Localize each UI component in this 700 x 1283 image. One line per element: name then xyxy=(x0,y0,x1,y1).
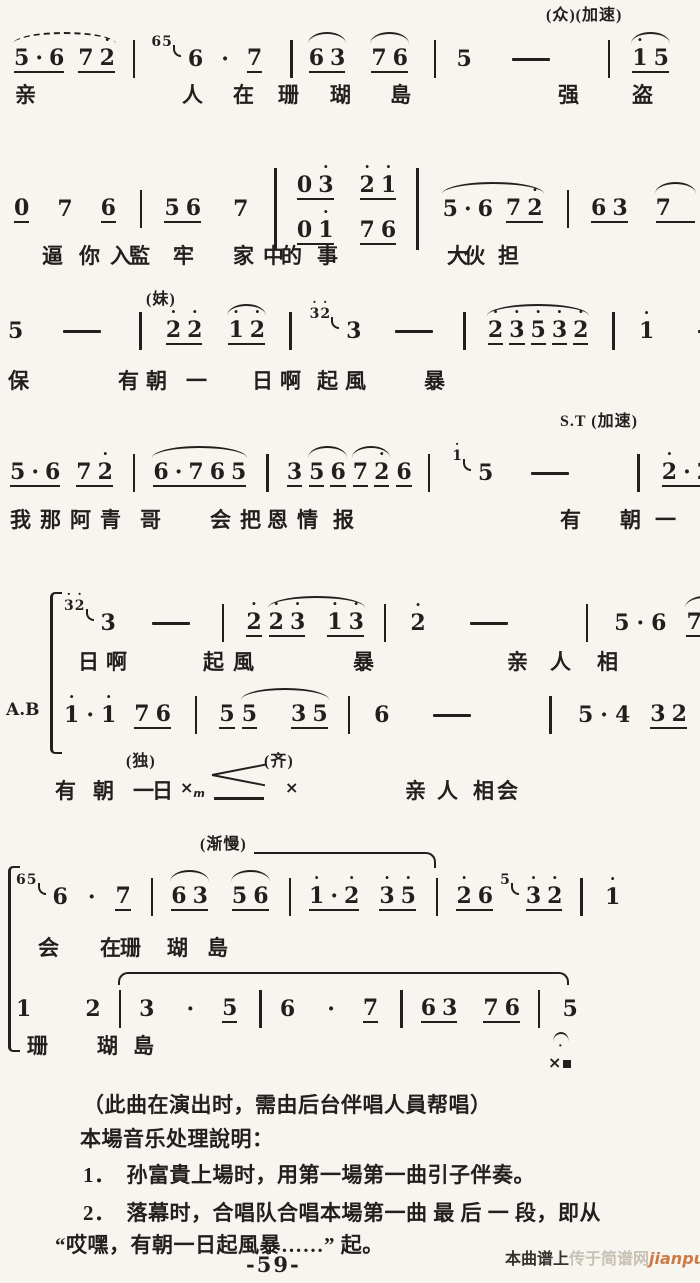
grace-notes: ·1 xyxy=(452,449,471,471)
augmentation-dot: · xyxy=(221,47,229,71)
note: 3 xyxy=(346,319,361,343)
note: 6 xyxy=(421,996,436,1020)
lyric-syllable: 日 xyxy=(252,368,273,394)
barline xyxy=(289,312,292,350)
lyric-syllable: 家 xyxy=(233,243,254,269)
lyric-syllable: 青 xyxy=(100,507,121,533)
page-number: -59- xyxy=(246,1252,301,1277)
slur-group: 63 xyxy=(171,884,208,911)
grace-notes: 65 xyxy=(151,35,181,57)
beam-group: 63 xyxy=(591,196,628,223)
note: 6 xyxy=(396,460,411,487)
note: ·1 xyxy=(318,218,333,242)
barline xyxy=(133,40,136,78)
lyric-syllable: 恩 xyxy=(267,507,288,533)
note: 7 xyxy=(57,197,72,221)
lyric-syllable: 人 xyxy=(437,778,458,804)
barline xyxy=(400,990,403,1028)
note: 3 xyxy=(612,196,627,220)
sheet-music-page: （此曲在演出时，需由后台伴唱人員帮唱） 本場音乐处理說明： 1． 孙富貴上場时，… xyxy=(0,0,700,1283)
octave-dot-above: · xyxy=(98,450,113,458)
barline xyxy=(195,696,198,734)
lyric-syllable: 事 xyxy=(317,243,338,269)
beam-group: 5·6 xyxy=(443,197,493,221)
note: 5 xyxy=(562,997,577,1021)
staff-line: 0765670·3·2·10·1765·67·2637 xyxy=(14,184,700,234)
barline xyxy=(274,168,277,250)
lyric-syllable: 相 xyxy=(597,649,618,675)
staff-line: 5·67·2656·763765·15·1 xyxy=(14,34,700,84)
lyric-syllable: 一 xyxy=(655,507,676,533)
note: ·3 xyxy=(349,610,364,634)
slur-group: ·2·3·1·3 xyxy=(269,610,364,637)
beam-group: ·2··2 xyxy=(662,460,700,487)
footer-note-line-5: “哎嘿，有朝一日起風暴……” 起。 xyxy=(55,1232,384,1259)
duration-dash xyxy=(152,622,190,625)
note: 5 xyxy=(614,611,629,635)
note: 7 xyxy=(115,884,130,911)
watermark-brand: jianpu.cn xyxy=(649,1249,700,1268)
note: ·2 xyxy=(98,460,113,484)
slur-group: 5·67·2 xyxy=(443,196,543,223)
beam-group: 5·6 xyxy=(10,460,60,487)
note: ·2 xyxy=(547,884,562,908)
octave-dot-above: · xyxy=(456,874,471,882)
note: 5 xyxy=(443,197,458,221)
octave-dot-above: · xyxy=(349,600,364,608)
square-mark-icon xyxy=(563,1060,571,1068)
tempo-annotation: (齐) xyxy=(264,752,294,772)
note: 3 xyxy=(291,702,306,726)
beam-group: 35 xyxy=(291,702,328,729)
lyric-syllable: 珊 xyxy=(120,935,141,961)
lyric-syllable: 起 xyxy=(203,649,224,675)
lyric-syllable: ×m xyxy=(180,778,205,800)
lyric-syllable: 在 xyxy=(233,82,254,108)
barline xyxy=(538,990,541,1028)
lyric-syllable: 人 xyxy=(550,649,571,675)
lyric-syllable: 起 xyxy=(317,368,338,394)
system-bracket xyxy=(50,592,62,754)
augmentation-dot: · xyxy=(637,611,645,635)
note: ·2 xyxy=(269,610,284,634)
note: 6 xyxy=(101,196,116,223)
note: 6 xyxy=(393,46,408,70)
lyric-syllable: 入 xyxy=(110,243,131,269)
lyric-syllable: 保 xyxy=(8,368,29,394)
beam-group: 7·2 xyxy=(76,460,113,487)
octave-dot-above: · xyxy=(605,875,620,883)
note: ·5 xyxy=(531,318,546,345)
note: ·2 xyxy=(374,460,389,487)
footer-note-line-2: 本場音乐处理說明： xyxy=(80,1126,274,1153)
lyric-syllable: 报 xyxy=(333,507,354,533)
lyric-syllable: 担 xyxy=(498,243,519,269)
note: ·3 xyxy=(379,884,394,908)
octave-dot-above: · xyxy=(320,299,330,305)
barline xyxy=(266,454,269,492)
note: 7 xyxy=(363,996,378,1023)
note: 7 xyxy=(360,218,375,242)
footer-note-line-3: 1． 孙富貴上場时，用第一場第一曲引子伴奏。 xyxy=(83,1162,535,1189)
octave-dot-above: · xyxy=(318,208,333,216)
octave-dot-above: · xyxy=(360,163,375,171)
note: 5 xyxy=(456,47,471,71)
octave-dot-above: · xyxy=(509,308,524,316)
augmentation-dot: · xyxy=(683,460,691,484)
two-voice-stack: 0·3·2·10·176 xyxy=(297,173,396,245)
note: 5 xyxy=(219,702,234,729)
tempo-annotation: S.T (加速) xyxy=(560,412,638,432)
octave-dot-above: · xyxy=(381,163,396,171)
note: ·3 xyxy=(64,599,74,614)
note: ·2 xyxy=(187,318,202,342)
note: 5 xyxy=(231,460,246,484)
lyric-syllable: 伙 xyxy=(464,243,485,269)
note: 5 xyxy=(232,884,247,908)
slur-group: 56 xyxy=(232,884,269,911)
lyric-syllable: 島 xyxy=(207,935,228,961)
note: 6 xyxy=(188,47,203,71)
octave-dot-above: · xyxy=(374,450,389,458)
barline xyxy=(348,696,351,734)
note: 5 xyxy=(14,46,29,70)
octave-dot-above: · xyxy=(228,308,243,316)
note: 7 xyxy=(134,702,149,726)
beam-group: 0·3 xyxy=(297,173,334,200)
note: 6 xyxy=(49,46,64,70)
octave-dot-above: · xyxy=(526,874,541,882)
note: 3 xyxy=(193,884,208,908)
note: 7 xyxy=(353,460,368,487)
note: ·2 xyxy=(360,173,375,197)
lyric-syllable: 朝 xyxy=(93,778,114,804)
slur-group: 76 xyxy=(371,46,408,73)
barline xyxy=(139,312,142,350)
barline xyxy=(463,312,466,350)
grace-hook-icon xyxy=(38,883,46,895)
slur-group: 7 xyxy=(656,196,695,223)
lyric-syllable: 一 xyxy=(186,368,207,394)
note: ·1 xyxy=(452,449,462,464)
note: 6 xyxy=(651,611,666,635)
note: 3 xyxy=(139,997,154,1021)
staff-line: 5·2·2·1·2·3·23·2·3·5·3·2·1 xyxy=(8,306,700,356)
tempo-annotation: (渐慢) xyxy=(200,835,247,855)
beam-group: ·26 xyxy=(456,884,493,911)
note: 5 xyxy=(8,319,23,343)
octave-dot-above: · xyxy=(344,874,359,882)
note: 5 xyxy=(500,873,510,888)
note: 6 xyxy=(374,703,389,727)
staff-line: ·3·23·2·2·3·1·3·25·67·2 xyxy=(64,598,700,648)
lyric-syllable: 風 xyxy=(345,368,366,394)
staff-line: 656·76356·1··2·3·5·265·3·2·1 xyxy=(16,872,700,922)
note: 6 xyxy=(280,997,295,1021)
octave-dot-above: · xyxy=(269,600,284,608)
octave-dot-above: · xyxy=(310,299,320,305)
duration-dash xyxy=(512,58,550,61)
augmentation-dot: · xyxy=(88,885,96,909)
note: 5 xyxy=(162,35,172,50)
note: 0 xyxy=(297,173,312,197)
beam-group: 7·2 xyxy=(78,46,115,73)
lyric-syllable: 牢 xyxy=(173,243,194,269)
note: 7 xyxy=(78,46,93,70)
octave-dot-above: · xyxy=(75,591,85,597)
octave-dot-above: · xyxy=(639,309,654,317)
barline xyxy=(608,40,611,78)
fermata-dot: · xyxy=(558,1042,588,1051)
footer-note-line-1: （此曲在演出时，需由后台伴唱人員帮唱） xyxy=(83,1092,492,1119)
lyric-syllable: 情 xyxy=(297,507,318,533)
augmentation-dot: · xyxy=(464,197,472,221)
lyric-syllable: 逼 xyxy=(42,243,63,269)
slur-group: 7·2 xyxy=(686,610,700,637)
beam-group: 56 xyxy=(164,196,201,223)
barline xyxy=(133,454,136,492)
octave-dot-above: · xyxy=(410,601,425,609)
note: 7 xyxy=(506,196,521,220)
slur-group: 5·67·2 xyxy=(14,46,115,73)
note: 3 xyxy=(101,611,116,635)
beam-group: ·2·3 xyxy=(269,610,306,637)
lyric-syllable: 盗 xyxy=(632,82,653,108)
note: ·1 xyxy=(101,703,116,727)
octave-dot-above: · xyxy=(64,693,79,701)
tempo-annotation: (众)(加速) xyxy=(546,6,622,26)
note: ·1 xyxy=(64,703,79,727)
note: ·1 xyxy=(632,46,647,70)
note: 5 xyxy=(164,196,179,220)
grace-hook-icon xyxy=(331,317,339,329)
lyric-syllable: 把 xyxy=(240,507,261,533)
note: ·2 xyxy=(573,318,588,345)
lyric-syllable: 日 xyxy=(78,649,99,675)
barline xyxy=(119,990,122,1028)
octave-dot-above: · xyxy=(401,874,416,882)
beam-group: 76 xyxy=(134,702,171,729)
beam-group: 7·2 xyxy=(506,196,543,223)
note: 7 xyxy=(371,46,386,70)
lyric-syllable: 暴 xyxy=(353,649,374,675)
note: 3 xyxy=(650,702,665,726)
note: 6 xyxy=(505,996,520,1020)
lyric-syllable: 島 xyxy=(133,1033,154,1059)
extension-line xyxy=(214,797,264,800)
augmentation-dot: · xyxy=(186,997,194,1021)
grace-notes: ·3·2 xyxy=(64,599,94,621)
augmentation-dot: · xyxy=(330,884,338,908)
slur-group: ·1·2 xyxy=(228,318,265,345)
note: ·2 xyxy=(320,307,330,322)
lyric-syllable: 会 xyxy=(38,935,59,961)
lyric-syllable: 島 xyxy=(390,82,411,108)
note: 6 xyxy=(156,702,171,726)
note: 5 xyxy=(27,873,37,888)
note: ·2 xyxy=(75,599,85,614)
voice-row: 0·176 xyxy=(297,218,396,245)
lyric-syllable: 瑚 xyxy=(97,1033,118,1059)
beam-group: ·3·2 xyxy=(526,884,563,911)
note: 5 xyxy=(222,996,237,1023)
barline xyxy=(434,40,437,78)
beam-group: ·3·5 xyxy=(379,884,416,911)
note: 6 xyxy=(478,197,493,221)
lyric-syllable: 朝 xyxy=(620,507,641,533)
note: 7 xyxy=(686,610,700,634)
note: ·1 xyxy=(309,884,324,908)
note: 5 xyxy=(309,460,324,487)
lyric-syllable: 日 xyxy=(152,778,173,804)
barline xyxy=(436,878,439,916)
beam-group: ·2·2 xyxy=(166,318,203,345)
beam-group: ·1··2 xyxy=(309,884,359,911)
note: 3 xyxy=(442,996,457,1020)
barline xyxy=(140,190,143,228)
lyric-syllable: 啊 xyxy=(106,649,127,675)
note: ·2 xyxy=(166,318,181,342)
octave-dot-above: · xyxy=(662,450,677,458)
lyric-syllable: 有 xyxy=(118,368,139,394)
octave-dot-above: · xyxy=(547,874,562,882)
voice-row: 0·3·2·1 xyxy=(297,173,396,200)
barline xyxy=(612,312,615,350)
octave-dot-above: · xyxy=(527,186,542,194)
note: ·5 xyxy=(401,884,416,908)
lyric-syllable: 强 xyxy=(558,82,579,108)
octave-dot-above: · xyxy=(101,693,116,701)
duration-dash xyxy=(531,472,569,475)
lyric-syllable: 会 xyxy=(497,778,518,804)
octave-dot-above: · xyxy=(250,308,265,316)
beam-group: 76 xyxy=(483,996,520,1023)
beam-group: ·2·1 xyxy=(360,173,397,200)
lyric-syllable: 有 xyxy=(560,507,581,533)
lyric-syllable: 啊 xyxy=(280,368,301,394)
octave-dot-above: · xyxy=(64,591,74,597)
duration-dash xyxy=(63,330,101,333)
lyric-syllable: × xyxy=(285,778,298,797)
augmentation-dot: · xyxy=(175,460,183,484)
lyric-syllable: 一 xyxy=(133,778,154,804)
octave-dot-above: · xyxy=(488,308,503,316)
beam-group: 0·1 xyxy=(297,218,334,245)
octave-dot-above: · xyxy=(573,308,588,316)
barline xyxy=(580,878,583,916)
barline xyxy=(428,454,431,492)
note: ·2 xyxy=(246,610,261,637)
note: 6 xyxy=(45,460,60,484)
octave-dot-above: · xyxy=(187,308,202,316)
note: 5 xyxy=(242,702,257,729)
lyric-syllable: 那 xyxy=(40,507,61,533)
lyric-syllable: 你 xyxy=(79,243,100,269)
octave-dot-above: · xyxy=(632,36,647,44)
watermark-middle: 传于简谱网 xyxy=(569,1249,649,1268)
lyric-syllable: 亲 xyxy=(405,778,426,804)
beam-group: 5·6 xyxy=(14,46,64,73)
note: 5 xyxy=(312,702,327,726)
note: 2 xyxy=(85,997,100,1021)
note: 0 xyxy=(14,196,29,223)
note: 3 xyxy=(330,46,345,70)
note: 5 xyxy=(10,460,25,484)
lyric-syllable: 人 xyxy=(182,82,203,108)
beam-group: 76 xyxy=(360,218,397,245)
note: ·1 xyxy=(605,885,620,909)
barline xyxy=(384,604,387,642)
watermark-prefix: 本曲谱上 xyxy=(505,1249,569,1268)
note: ·3 xyxy=(290,610,305,634)
grace-notes: ·3·2 xyxy=(310,307,340,329)
note: ·1 xyxy=(381,173,396,197)
augmentation-dot: · xyxy=(600,703,608,727)
note: ·2 xyxy=(488,318,503,345)
grace-hook-icon xyxy=(173,45,181,57)
note: ·1 xyxy=(327,610,342,634)
note: ·3 xyxy=(318,173,333,197)
note: 6 xyxy=(153,460,168,484)
phrase-slur xyxy=(118,972,569,985)
octave-dot-above: · xyxy=(327,600,342,608)
note: ·2 xyxy=(456,884,471,908)
slur-group: ·15 xyxy=(632,46,669,73)
note: 6 xyxy=(591,196,606,220)
barline xyxy=(290,40,293,78)
note: 6 xyxy=(478,884,493,908)
note: ·1 xyxy=(639,319,654,343)
octave-dot-above: · xyxy=(531,308,546,316)
note: ·3 xyxy=(526,884,541,908)
barline xyxy=(289,878,292,916)
lyric-syllable: 風 xyxy=(233,649,254,675)
lyric-syllable: 哥 xyxy=(140,507,161,533)
staff-line: 123·56·763765 xyxy=(16,984,700,1034)
slur-group: 6·765 xyxy=(153,460,246,487)
note: 6 xyxy=(210,460,225,484)
beam-group: 32 xyxy=(650,702,687,729)
barline xyxy=(567,190,570,228)
lyric-syllable: 阿 xyxy=(70,507,91,533)
slur-group: 63 xyxy=(309,46,346,73)
octave-dot-above: · xyxy=(452,441,462,447)
note: 6 xyxy=(253,884,268,908)
note: 6 xyxy=(151,35,161,50)
footer-note-line-4: 2． 落幕时，合唱队合唱本場第一曲 最 后 一 段，即从 xyxy=(83,1200,601,1227)
lyric-syllable: 会 xyxy=(210,507,231,533)
lyric-syllable: 瑚 xyxy=(330,82,351,108)
note: 7 xyxy=(483,996,498,1020)
note: 6 xyxy=(186,196,201,220)
note: 7 xyxy=(188,460,203,484)
barline xyxy=(151,878,154,916)
slur-group: 56 xyxy=(309,460,346,487)
lyric-syllable: 在 xyxy=(100,935,121,961)
grace-notes: 65 xyxy=(16,873,46,895)
barline xyxy=(549,696,552,734)
barline xyxy=(416,168,419,250)
lyric-syllable: 暴 xyxy=(424,368,445,394)
duration-dash xyxy=(470,622,508,625)
note: 6 xyxy=(381,218,396,242)
duration-dash xyxy=(395,330,433,333)
barline xyxy=(637,454,640,492)
note: 7 xyxy=(247,46,262,73)
note: ·2 xyxy=(410,611,425,635)
lyric-syllable: 珊 xyxy=(27,1033,48,1059)
slur-group: 7·2 xyxy=(353,460,390,487)
